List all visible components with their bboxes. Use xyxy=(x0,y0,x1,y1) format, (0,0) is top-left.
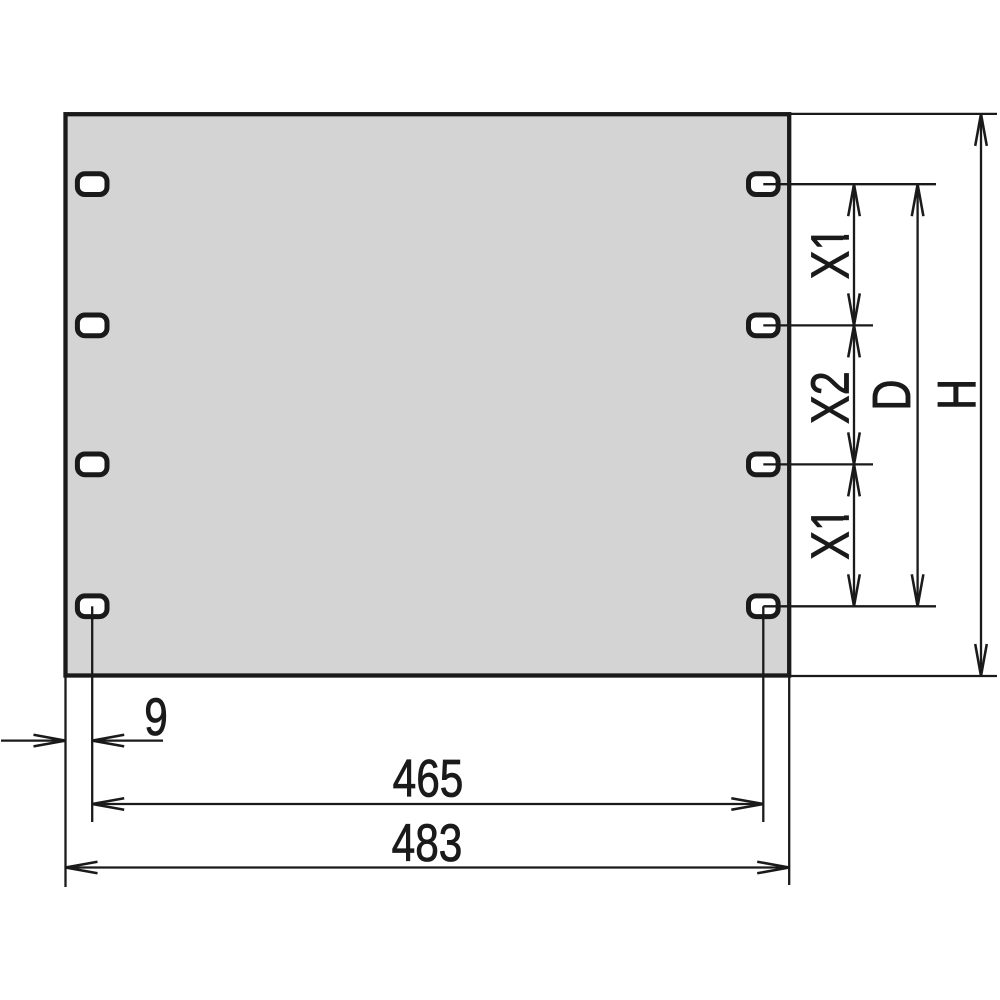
svg-text:H: H xyxy=(928,379,988,410)
svg-text:X1: X1 xyxy=(801,507,861,560)
svg-text:483: 483 xyxy=(392,815,463,874)
svg-text:465: 465 xyxy=(393,750,464,809)
svg-text:D: D xyxy=(863,380,923,411)
svg-text:9: 9 xyxy=(144,689,168,748)
svg-text:X1: X1 xyxy=(801,227,861,280)
svg-text:X2: X2 xyxy=(801,371,861,424)
